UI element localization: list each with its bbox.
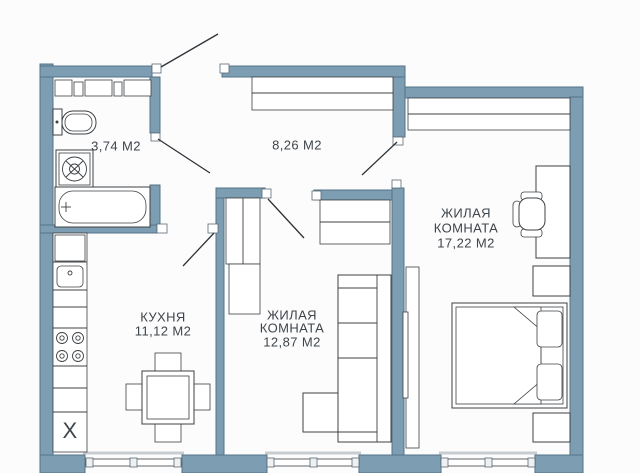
room-label-kitchen-name: КУХНЯ: [140, 310, 185, 325]
room-label-bathroom-area: 3,74 М2: [91, 139, 141, 154]
room-label-hallway-area: 8,26 М2: [272, 138, 322, 153]
wall-living-bedroom: [392, 188, 404, 455]
kitchen-sink: [57, 266, 83, 287]
wall-living-cap-left: [216, 188, 265, 198]
wall-left-outer: [40, 64, 53, 473]
dining-set: [126, 353, 210, 442]
living-room-side-wardrobe: [226, 198, 260, 314]
bedroom-wardrobe: [408, 98, 570, 130]
room-label-living2-name-line1: ЖИЛАЯ: [441, 206, 491, 221]
jamb-entrance-right: [220, 64, 229, 73]
wall-step: [393, 77, 405, 137]
wall-bottom-pier-2: [182, 455, 267, 473]
desk-chair: [513, 192, 545, 237]
living-room-furniture: [303, 275, 391, 442]
floor-plan-drawing: [0, 0, 640, 473]
chair: [155, 353, 181, 373]
tv-console: [403, 267, 419, 448]
kitchen-door-leaf: [183, 233, 214, 266]
jamb-kitchen-door-right: [208, 224, 218, 233]
bathtub: [55, 187, 150, 227]
room-label-living1-area: 12,87 М2: [263, 335, 320, 350]
hallway-wardrobe: [252, 77, 393, 110]
pillow: [537, 311, 562, 347]
pillow: [537, 364, 562, 400]
wall-bathroom-right-lower: [150, 185, 160, 227]
bedroom-door-leaf: [362, 142, 397, 175]
chair: [155, 422, 181, 442]
room-label-living2-name-line2: КОМНАТА: [434, 221, 498, 236]
wall-bottom-pier-1: [40, 455, 85, 473]
living-room-top-wardrobe: [320, 200, 390, 244]
toilet: [53, 109, 96, 135]
wall-bedroom-top: [405, 87, 583, 98]
bedroom-window: [439, 453, 537, 467]
room-label-living1-name-line2: КОМНАТА: [260, 321, 324, 336]
jamb-living-door-left: [262, 189, 271, 198]
nightstand: [533, 266, 570, 296]
washing-machine: [56, 150, 93, 188]
wall-hallway-top: [222, 66, 405, 77]
jamb-kitchen-door-left: [157, 224, 167, 233]
jamb-entrance-left: [152, 64, 161, 73]
living-room-door-leaf: [268, 199, 304, 238]
bathroom-shelf: [55, 80, 151, 96]
jamb-bedroom-door-bottom: [392, 180, 401, 188]
wall-bathroom-right-upper: [150, 77, 160, 133]
floor-plan: 3,74 М2 8,26 М2 КУХНЯ 11,12 М2 ЖИЛАЯ КОМ…: [0, 0, 640, 473]
wall-right-outer: [570, 97, 583, 473]
living-room-window: [265, 453, 361, 467]
wall-bathroom-top: [40, 66, 152, 77]
dish-dryer: [55, 235, 85, 261]
bathroom-door-leaf: [158, 139, 210, 173]
bathroom-fixtures: [53, 80, 151, 227]
fridge-space-mark: X: [62, 418, 77, 444]
wall-bottom-pier-3: [359, 455, 441, 473]
sofa: [303, 275, 391, 442]
wall-living-cap-right: [314, 190, 404, 200]
entrance-door-leaf: [161, 34, 218, 67]
windows: [83, 453, 537, 467]
room-label-kitchen-area: 11,12 М2: [135, 324, 191, 339]
double-bed: [452, 303, 567, 408]
room-label-living2-area: 17,22 М2: [437, 236, 494, 251]
wall-bottom-pier-4: [535, 455, 583, 473]
jamb-living-door-right: [312, 191, 321, 200]
kitchen-window: [83, 453, 184, 467]
nightstand: [533, 413, 570, 442]
